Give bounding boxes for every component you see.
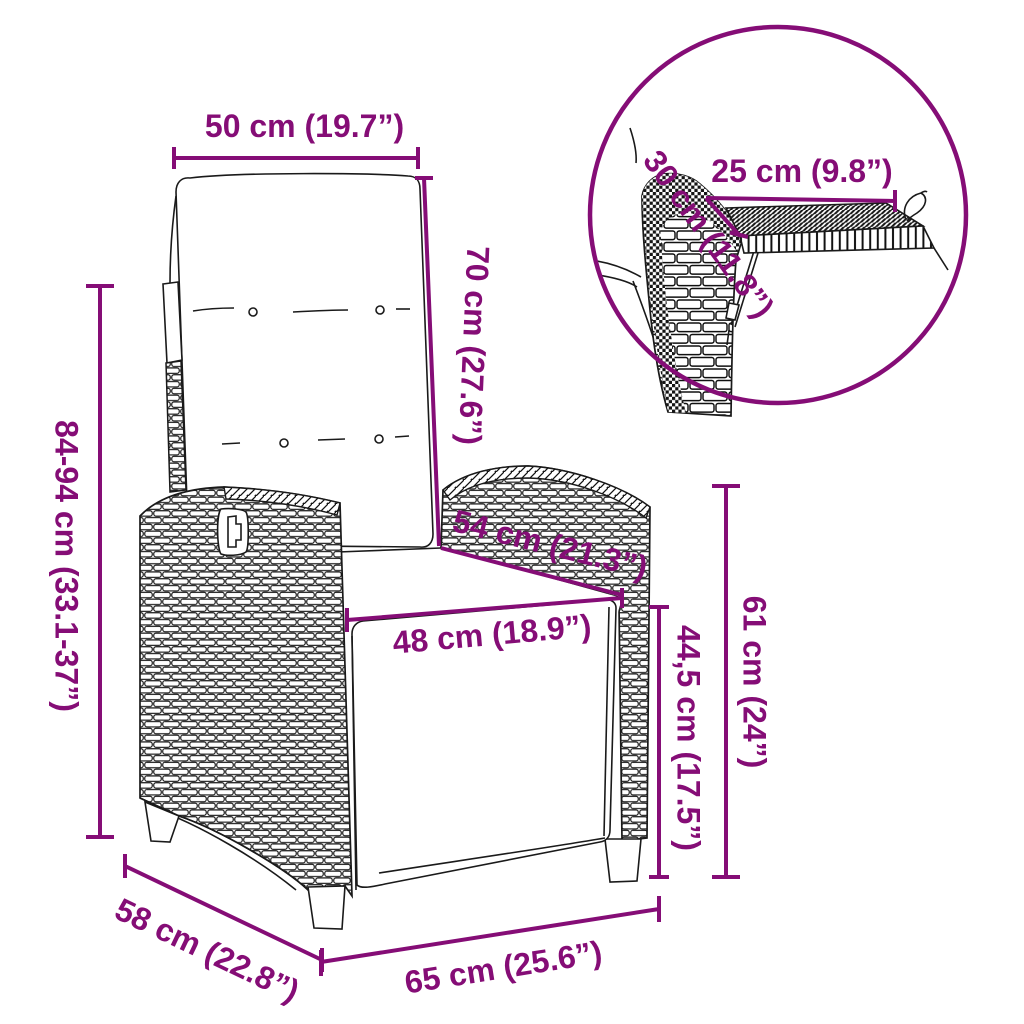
svg-text:50 cm (19.7”): 50 cm (19.7”) bbox=[205, 108, 404, 144]
svg-text:25 cm (9.8”): 25 cm (9.8”) bbox=[711, 153, 892, 189]
svg-text:61 cm (24”): 61 cm (24”) bbox=[737, 596, 773, 769]
svg-text:84-94 cm (33.1-37”): 84-94 cm (33.1-37”) bbox=[49, 420, 85, 712]
svg-text:44,5 cm (17.5”): 44,5 cm (17.5”) bbox=[671, 625, 707, 851]
